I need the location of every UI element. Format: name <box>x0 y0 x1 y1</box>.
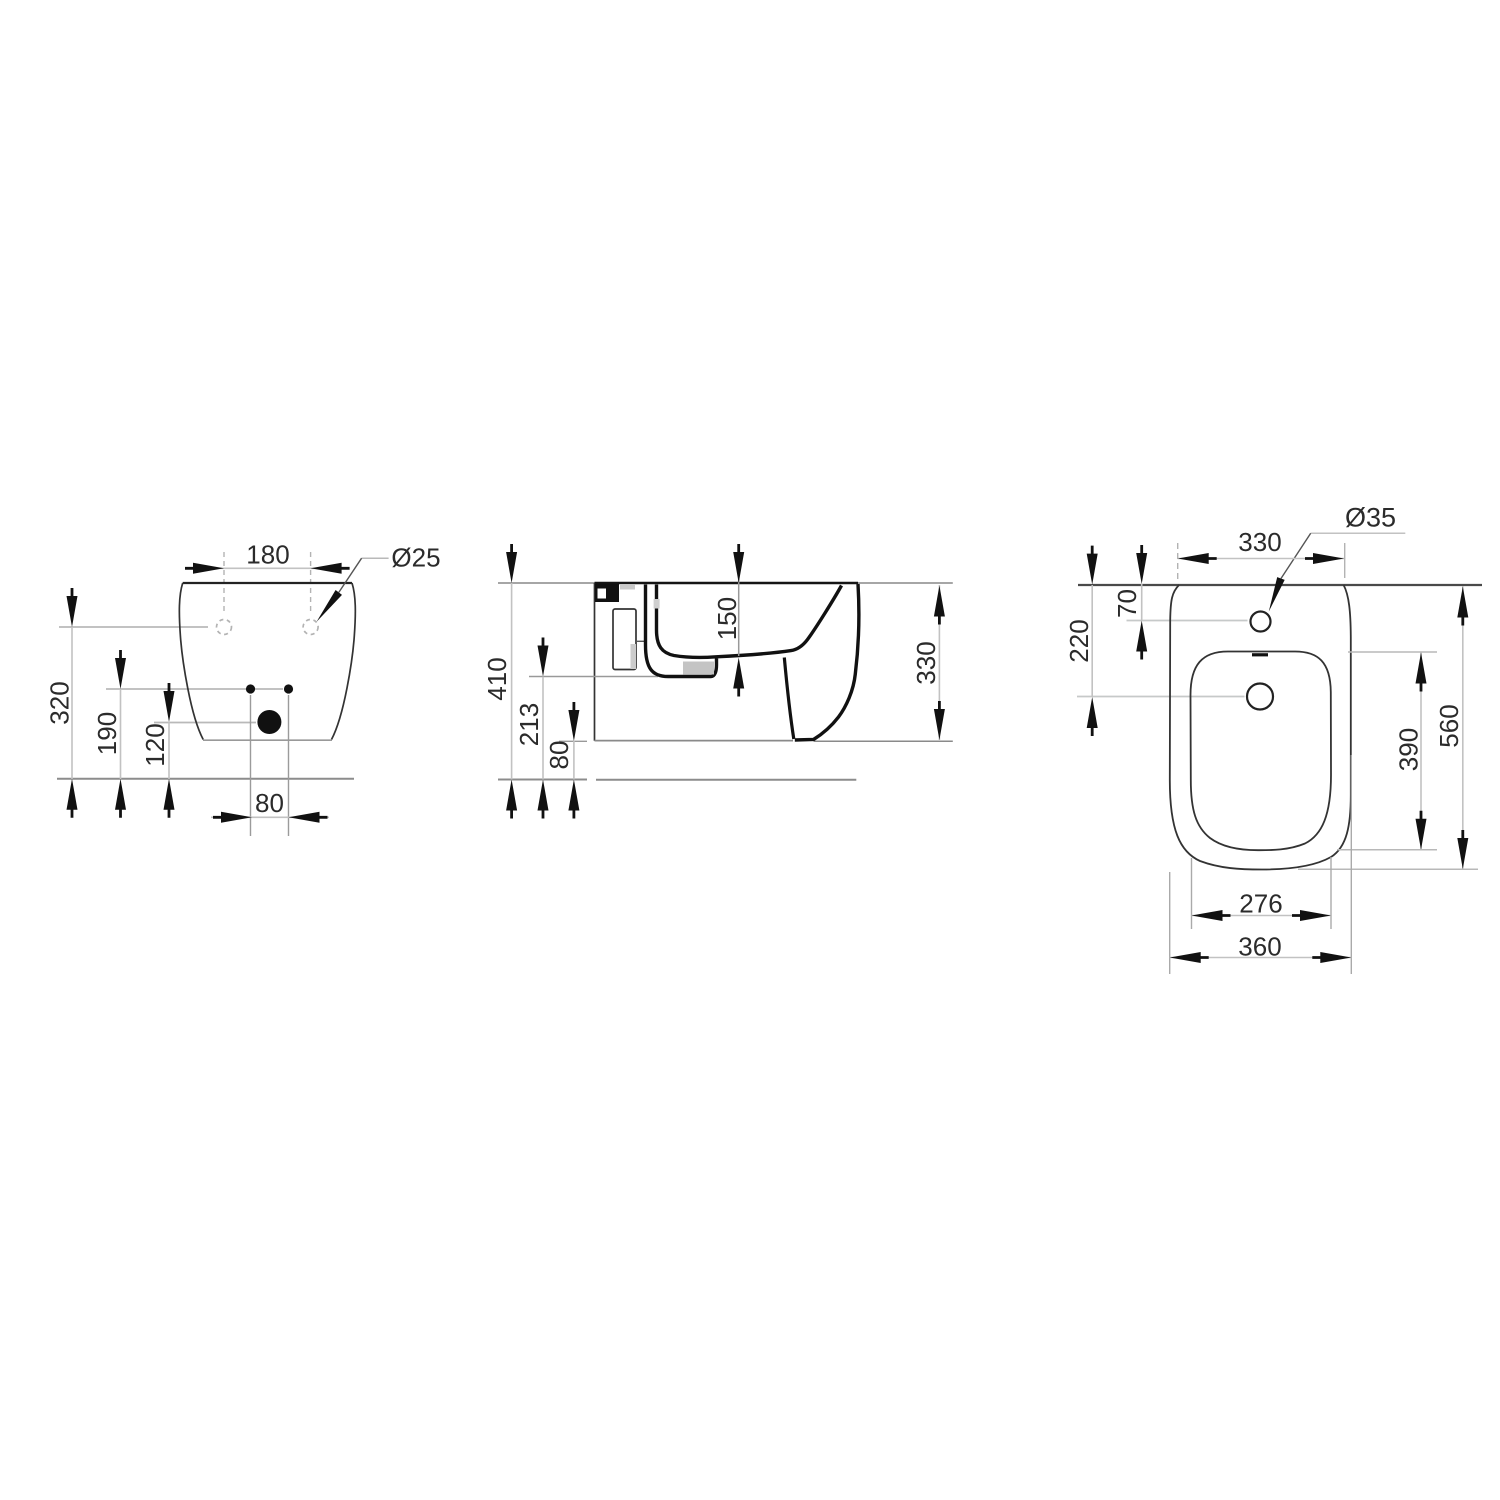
svg-text:320: 320 <box>45 681 75 724</box>
svg-text:330: 330 <box>911 641 941 684</box>
svg-text:390: 390 <box>1394 728 1424 771</box>
svg-text:220: 220 <box>1064 619 1094 662</box>
svg-text:330: 330 <box>1238 527 1281 557</box>
svg-text:190: 190 <box>92 712 122 755</box>
svg-text:180: 180 <box>246 540 289 570</box>
svg-text:150: 150 <box>712 597 742 640</box>
svg-text:410: 410 <box>482 657 512 700</box>
svg-text:70: 70 <box>1112 589 1142 618</box>
svg-text:360: 360 <box>1238 932 1281 962</box>
svg-text:560: 560 <box>1434 704 1464 747</box>
svg-text:120: 120 <box>140 723 170 766</box>
svg-text:80: 80 <box>544 741 574 770</box>
svg-text:80: 80 <box>255 788 284 818</box>
svg-text:213: 213 <box>514 703 544 746</box>
svg-text:276: 276 <box>1239 889 1282 919</box>
svg-text:Ø35: Ø35 <box>1345 503 1396 533</box>
svg-text:Ø25: Ø25 <box>391 543 440 573</box>
